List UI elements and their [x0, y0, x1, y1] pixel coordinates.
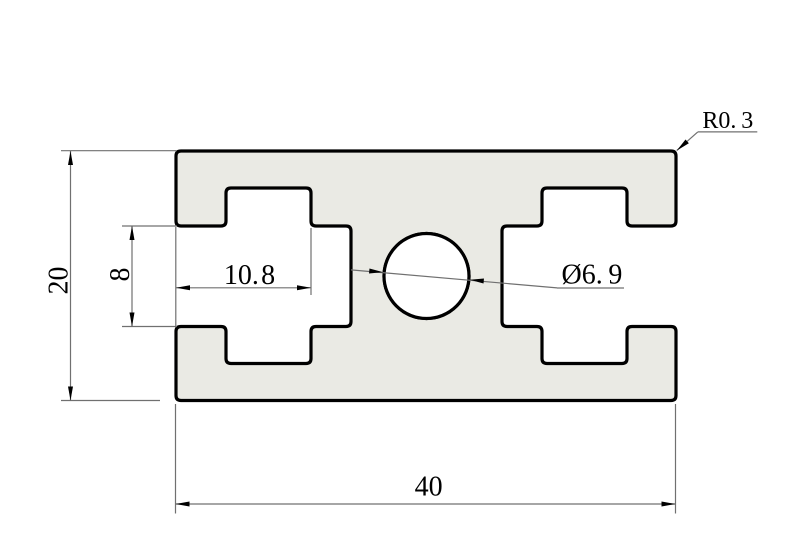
svg-text:Ø6. 9: Ø6. 9	[562, 260, 623, 291]
svg-text:40: 40	[415, 471, 443, 502]
svg-text:20: 20	[44, 267, 75, 295]
svg-text:8: 8	[105, 268, 136, 282]
svg-text:10. 8: 10. 8	[224, 260, 275, 291]
svg-text:R0. 3: R0. 3	[702, 108, 753, 134]
